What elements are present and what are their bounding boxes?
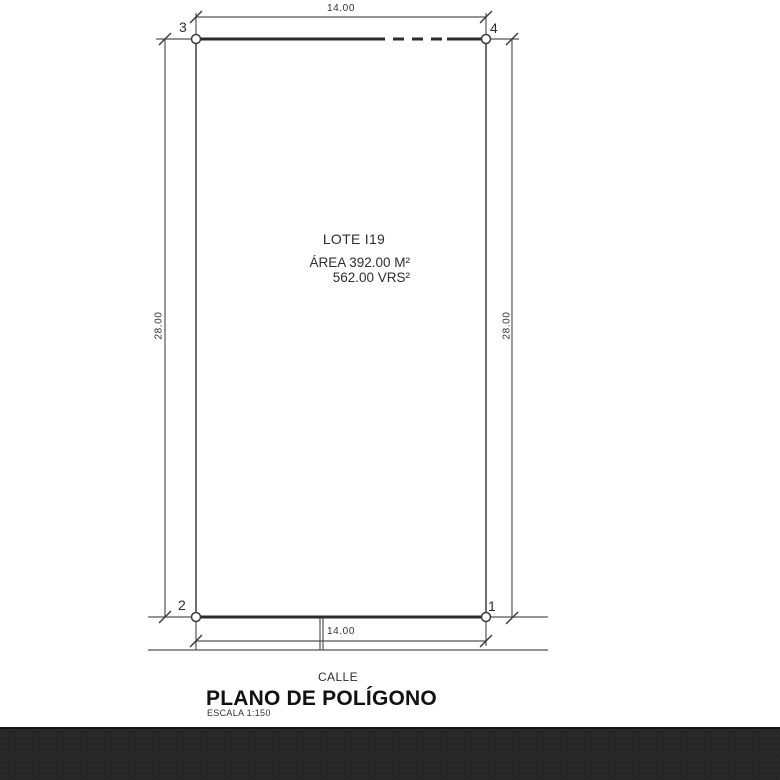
dim-label-left: 28.00: [154, 286, 165, 366]
lot-area-block: ÁREA 392.00 M² 562.00 VRS²: [300, 255, 410, 285]
corner-label-3: 3: [179, 19, 187, 35]
dim-label-right: 28.00: [502, 286, 513, 366]
lot-boundary: [196, 39, 486, 617]
dimension-ticks: [159, 11, 518, 647]
plan-canvas: 14.00 14.00 28.00 28.00 3 4 2 1 LOTE I19…: [0, 0, 780, 780]
dimension-lines: [148, 13, 548, 650]
corner-marker: [192, 613, 201, 622]
corner-label-1: 1: [488, 598, 496, 614]
dim-label-top: 14.00: [296, 3, 386, 14]
corner-label-2: 2: [178, 597, 186, 613]
corner-marker: [192, 35, 201, 44]
plan-linework: [0, 0, 780, 780]
lot-area-vrs-label: 562.00 VRS²: [300, 270, 410, 285]
dim-label-bottom: 14.00: [296, 626, 386, 637]
footer-bar: [0, 727, 780, 780]
lot-name-label: LOTE I19: [304, 231, 404, 247]
lot-area-m2-label: ÁREA 392.00 M²: [300, 255, 410, 270]
drawing-scale: ESCALA 1:150: [207, 708, 271, 718]
street-label: CALLE: [288, 670, 388, 684]
corner-label-4: 4: [490, 20, 498, 36]
